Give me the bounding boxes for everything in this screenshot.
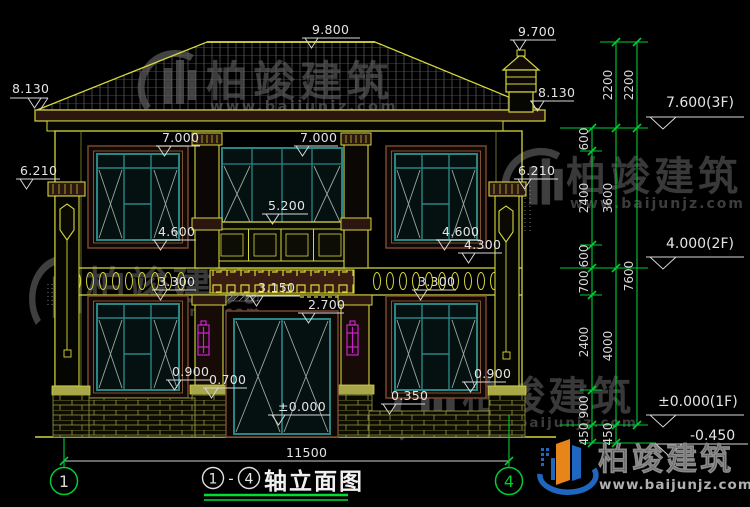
svg-text:4.000(2F): 4.000(2F) [666, 236, 734, 252]
cornice [47, 121, 503, 131]
chain-inner-2: 600 [577, 245, 591, 268]
chain-inner-1: 2400 [577, 183, 591, 214]
svg-text:5.200: 5.200 [268, 198, 305, 213]
chain-outer-0: 2200 [622, 70, 636, 101]
svg-text:±0.000: ±0.000 [278, 399, 326, 414]
brand-url: www.baijunjz.com [599, 477, 750, 493]
svg-text:8.130: 8.130 [538, 85, 575, 100]
watermark-url: www.baijunjz.com [570, 196, 745, 212]
dim-chimney: 9.700 [510, 24, 556, 50]
total-width-value: 11500 [286, 445, 327, 460]
svg-text:0.900: 0.900 [474, 366, 511, 381]
title-separator: - [228, 470, 233, 488]
axis-number-left: 1 [59, 472, 69, 491]
level-markers: 7.600(3F) 4.000(2F) ±0.000(1F) -0.450 [646, 95, 748, 456]
chain-inner-6: 450 [577, 423, 591, 446]
chain-mid-0: 2200 [601, 70, 615, 101]
svg-text:7.000: 7.000 [300, 130, 337, 145]
chain-inner-4: 2400 [577, 327, 591, 358]
column-2f-left [192, 133, 222, 268]
chain-outer-1: 7600 [622, 261, 636, 292]
svg-text:6.210: 6.210 [518, 163, 555, 178]
svg-text:4.600: 4.600 [158, 224, 195, 239]
hatch-detail [228, 294, 258, 301]
corner-pillar-right [488, 182, 530, 437]
title-axis-start: 1 [209, 472, 218, 488]
svg-text:9.700: 9.700 [518, 24, 555, 39]
cad-canvas: 柏竣建筑 www.baijunjz.com 柏竣建筑 www.baijunjz.… [0, 0, 750, 507]
elevation-drawing: 柏竣建筑 www.baijunjz.com 柏竣建筑 www.baijunjz.… [0, 0, 750, 507]
chain-mid-1: 3600 [601, 183, 615, 214]
svg-text:3.300: 3.300 [158, 274, 195, 289]
title-axis-end: 4 [245, 472, 254, 488]
svg-text:±0.000(1F): ±0.000(1F) [658, 394, 738, 410]
svg-text:3.150: 3.150 [258, 280, 295, 295]
svg-text:3.300: 3.300 [418, 274, 455, 289]
svg-text:0.900: 0.900 [172, 364, 209, 379]
watermark-mid-right: 柏竣建筑 www.baijunjz.com [505, 152, 745, 212]
level-3f: 7.600(3F) [646, 95, 744, 129]
dim-eave-right: 8.130 [530, 85, 575, 111]
axis-bubble-left: 1 [51, 468, 78, 495]
brand-name: 柏竣建筑 [598, 442, 734, 478]
svg-text:6.210: 6.210 [20, 163, 57, 178]
title-block: 1 - 4 轴立面图 [203, 468, 365, 501]
level-1f: ±0.000(1F) [646, 394, 744, 427]
svg-text:4.300: 4.300 [464, 237, 501, 252]
drawing-title: 轴立面图 [264, 468, 364, 495]
svg-text:7.600(3F): 7.600(3F) [666, 95, 734, 111]
dim-eave-left: 8.130 [10, 81, 49, 110]
eave-fascia [35, 110, 545, 121]
balcony-railing [216, 222, 346, 268]
column-2f-right [341, 133, 371, 268]
svg-text:7.000: 7.000 [162, 130, 199, 145]
roof [35, 42, 545, 131]
window-1f-left [88, 296, 188, 398]
brand-footer: 柏竣建筑 www.baijunjz.com [540, 439, 750, 493]
pilaster-1f-right [336, 295, 374, 437]
svg-text:0.350: 0.350 [391, 388, 428, 403]
chain-inner-0: 600 [577, 128, 591, 151]
brand-logo-icon [540, 439, 596, 492]
axis-bubble-right: 4 [496, 468, 523, 495]
level-2f: 4.000(2F) [646, 236, 744, 269]
window-1f-right [386, 296, 486, 398]
svg-text:8.130: 8.130 [12, 81, 49, 96]
chain-inner-3: 700 [577, 271, 591, 294]
svg-text:2.700: 2.700 [308, 297, 345, 312]
svg-text:9.800: 9.800 [312, 22, 349, 37]
svg-text:0.700: 0.700 [209, 372, 246, 387]
axis-number-right: 4 [504, 472, 514, 491]
chain-mid-2: 4000 [601, 331, 615, 362]
chain-inner-5: 900 [577, 396, 591, 419]
